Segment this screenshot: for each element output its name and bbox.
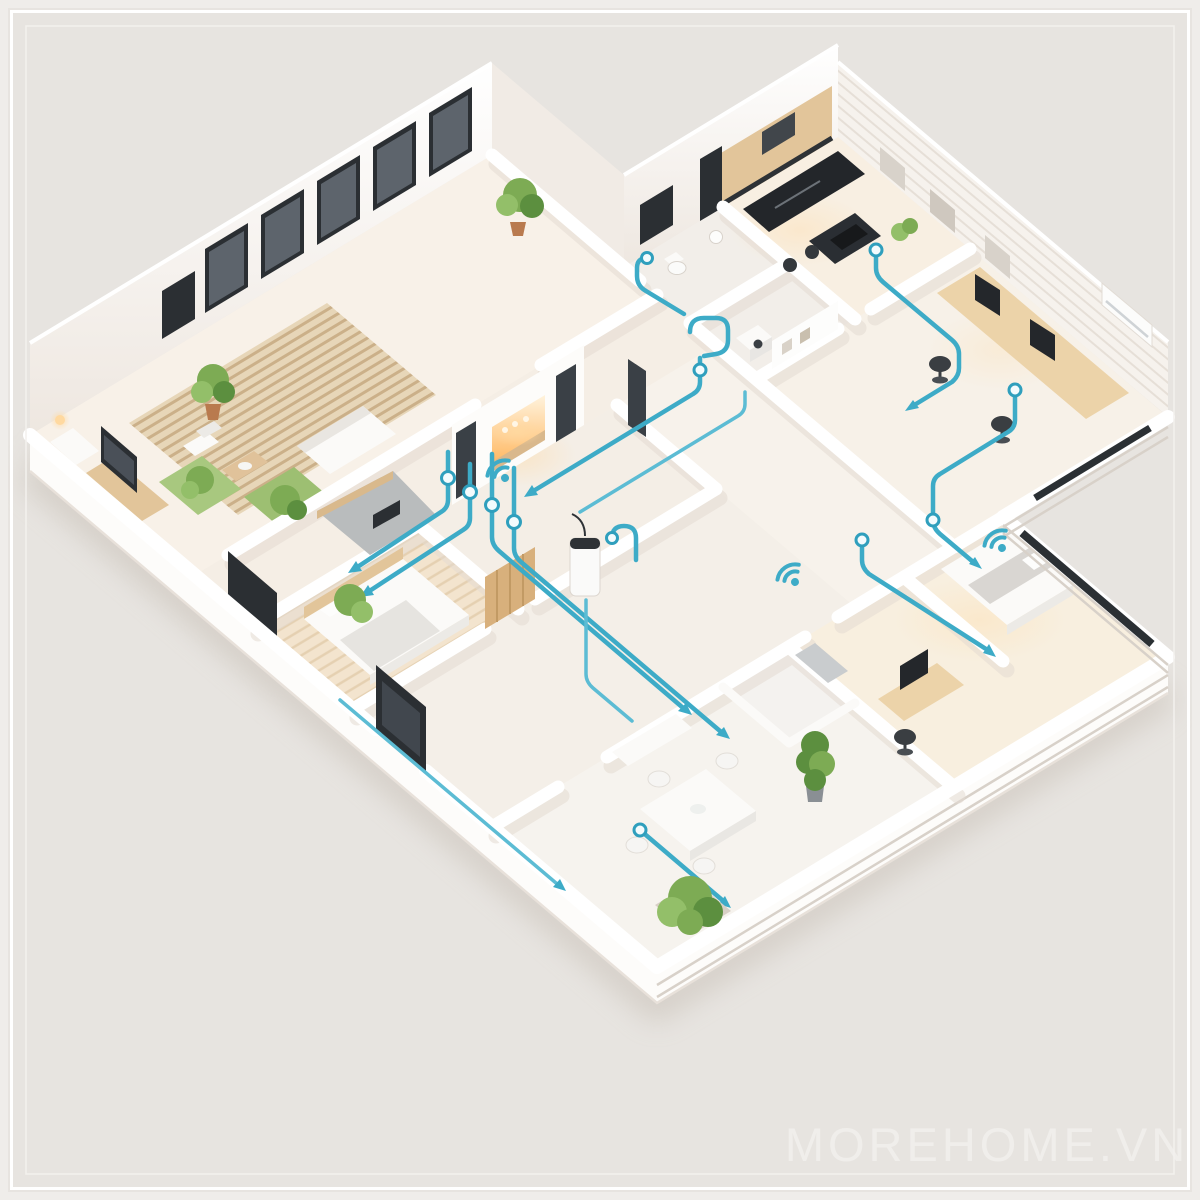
sink-icon bbox=[710, 231, 723, 244]
chair-icon bbox=[648, 771, 670, 787]
chair-icon bbox=[693, 858, 715, 874]
bar-stool-icon bbox=[805, 245, 819, 259]
watermark-text: MOREHOME.VN bbox=[785, 1118, 1189, 1171]
floorplan-render: MOREHOME.VN bbox=[0, 0, 1200, 1200]
chair-icon bbox=[716, 753, 738, 769]
chair-icon bbox=[626, 837, 648, 853]
office-chair-icon bbox=[894, 729, 916, 756]
bar-stool-icon bbox=[783, 258, 797, 272]
isometric-scene: MOREHOME.VN bbox=[0, 0, 1200, 1200]
curtain bbox=[556, 364, 576, 442]
